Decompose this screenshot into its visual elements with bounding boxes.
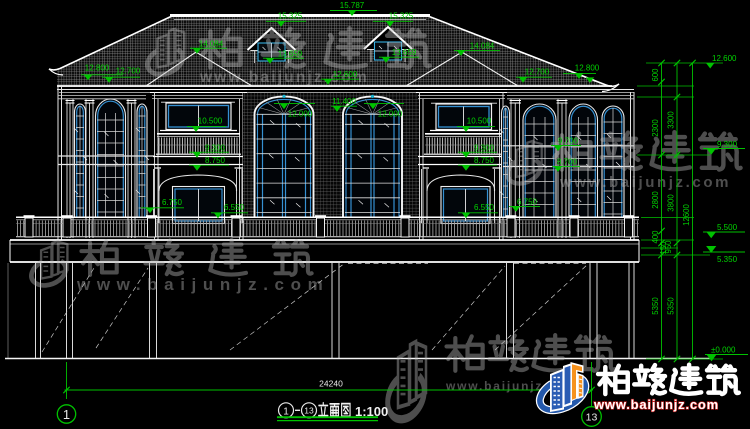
svg-text:1: 1 <box>283 406 289 417</box>
svg-text:14.084: 14.084 <box>199 39 224 48</box>
svg-text:12.000: 12.000 <box>288 110 313 119</box>
svg-text:12600: 12600 <box>682 203 691 225</box>
svg-text:www.baijunjz.com: www.baijunjz.com <box>76 275 329 294</box>
svg-text:400: 400 <box>651 230 660 244</box>
svg-text:5.500: 5.500 <box>717 223 738 232</box>
svg-text:8.700: 8.700 <box>557 157 578 166</box>
svg-text:15.787: 15.787 <box>340 1 365 10</box>
svg-text:8.750: 8.750 <box>205 156 226 165</box>
svg-text:9.300: 9.300 <box>717 140 738 149</box>
svg-text:6.750: 6.750 <box>517 197 538 206</box>
svg-text:15.325: 15.325 <box>278 11 303 20</box>
svg-text:6.550: 6.550 <box>474 203 495 212</box>
svg-text:5350: 5350 <box>651 297 660 315</box>
svg-text:10.500: 10.500 <box>198 116 223 125</box>
svg-text:9.700: 9.700 <box>558 137 579 146</box>
svg-text:www.baijunjz.com: www.baijunjz.com <box>559 174 731 191</box>
svg-text:1: 1 <box>63 407 70 422</box>
svg-text:12.800: 12.800 <box>85 63 110 72</box>
svg-text:12.600: 12.600 <box>333 70 358 79</box>
svg-text:8.750: 8.750 <box>474 156 495 165</box>
svg-text:600: 600 <box>651 68 660 82</box>
svg-text:24240: 24240 <box>319 379 343 389</box>
svg-text:13: 13 <box>304 406 314 416</box>
svg-text:12.600: 12.600 <box>712 54 737 63</box>
svg-text:3300: 3300 <box>667 111 676 129</box>
svg-text:2300: 2300 <box>651 119 660 137</box>
svg-text:13.659: 13.659 <box>392 48 417 57</box>
svg-text:www.baijunjz.com: www.baijunjz.com <box>593 397 719 412</box>
svg-text:12.800: 12.800 <box>575 63 600 72</box>
svg-text:3800: 3800 <box>667 194 676 212</box>
svg-text:2800: 2800 <box>651 191 660 209</box>
svg-text:13.659: 13.659 <box>278 49 303 58</box>
svg-text:12.700: 12.700 <box>116 67 141 76</box>
svg-text:13: 13 <box>586 412 598 424</box>
svg-text:6.550: 6.550 <box>224 203 245 212</box>
svg-text:5.350: 5.350 <box>717 255 738 264</box>
svg-text:12.000: 12.000 <box>378 110 403 119</box>
svg-text:12.700: 12.700 <box>525 67 550 76</box>
svg-text:10.500: 10.500 <box>467 116 492 125</box>
svg-text:9.300: 9.300 <box>474 143 495 152</box>
svg-text:6.750: 6.750 <box>162 198 183 207</box>
svg-text:±0.000: ±0.000 <box>711 346 736 355</box>
svg-text:15.325: 15.325 <box>389 11 414 20</box>
svg-text:9.300: 9.300 <box>205 143 226 152</box>
svg-text:14.084: 14.084 <box>470 41 495 50</box>
svg-text:11.400: 11.400 <box>332 97 356 106</box>
svg-text:5350: 5350 <box>667 297 676 315</box>
svg-text:950: 950 <box>664 240 673 254</box>
